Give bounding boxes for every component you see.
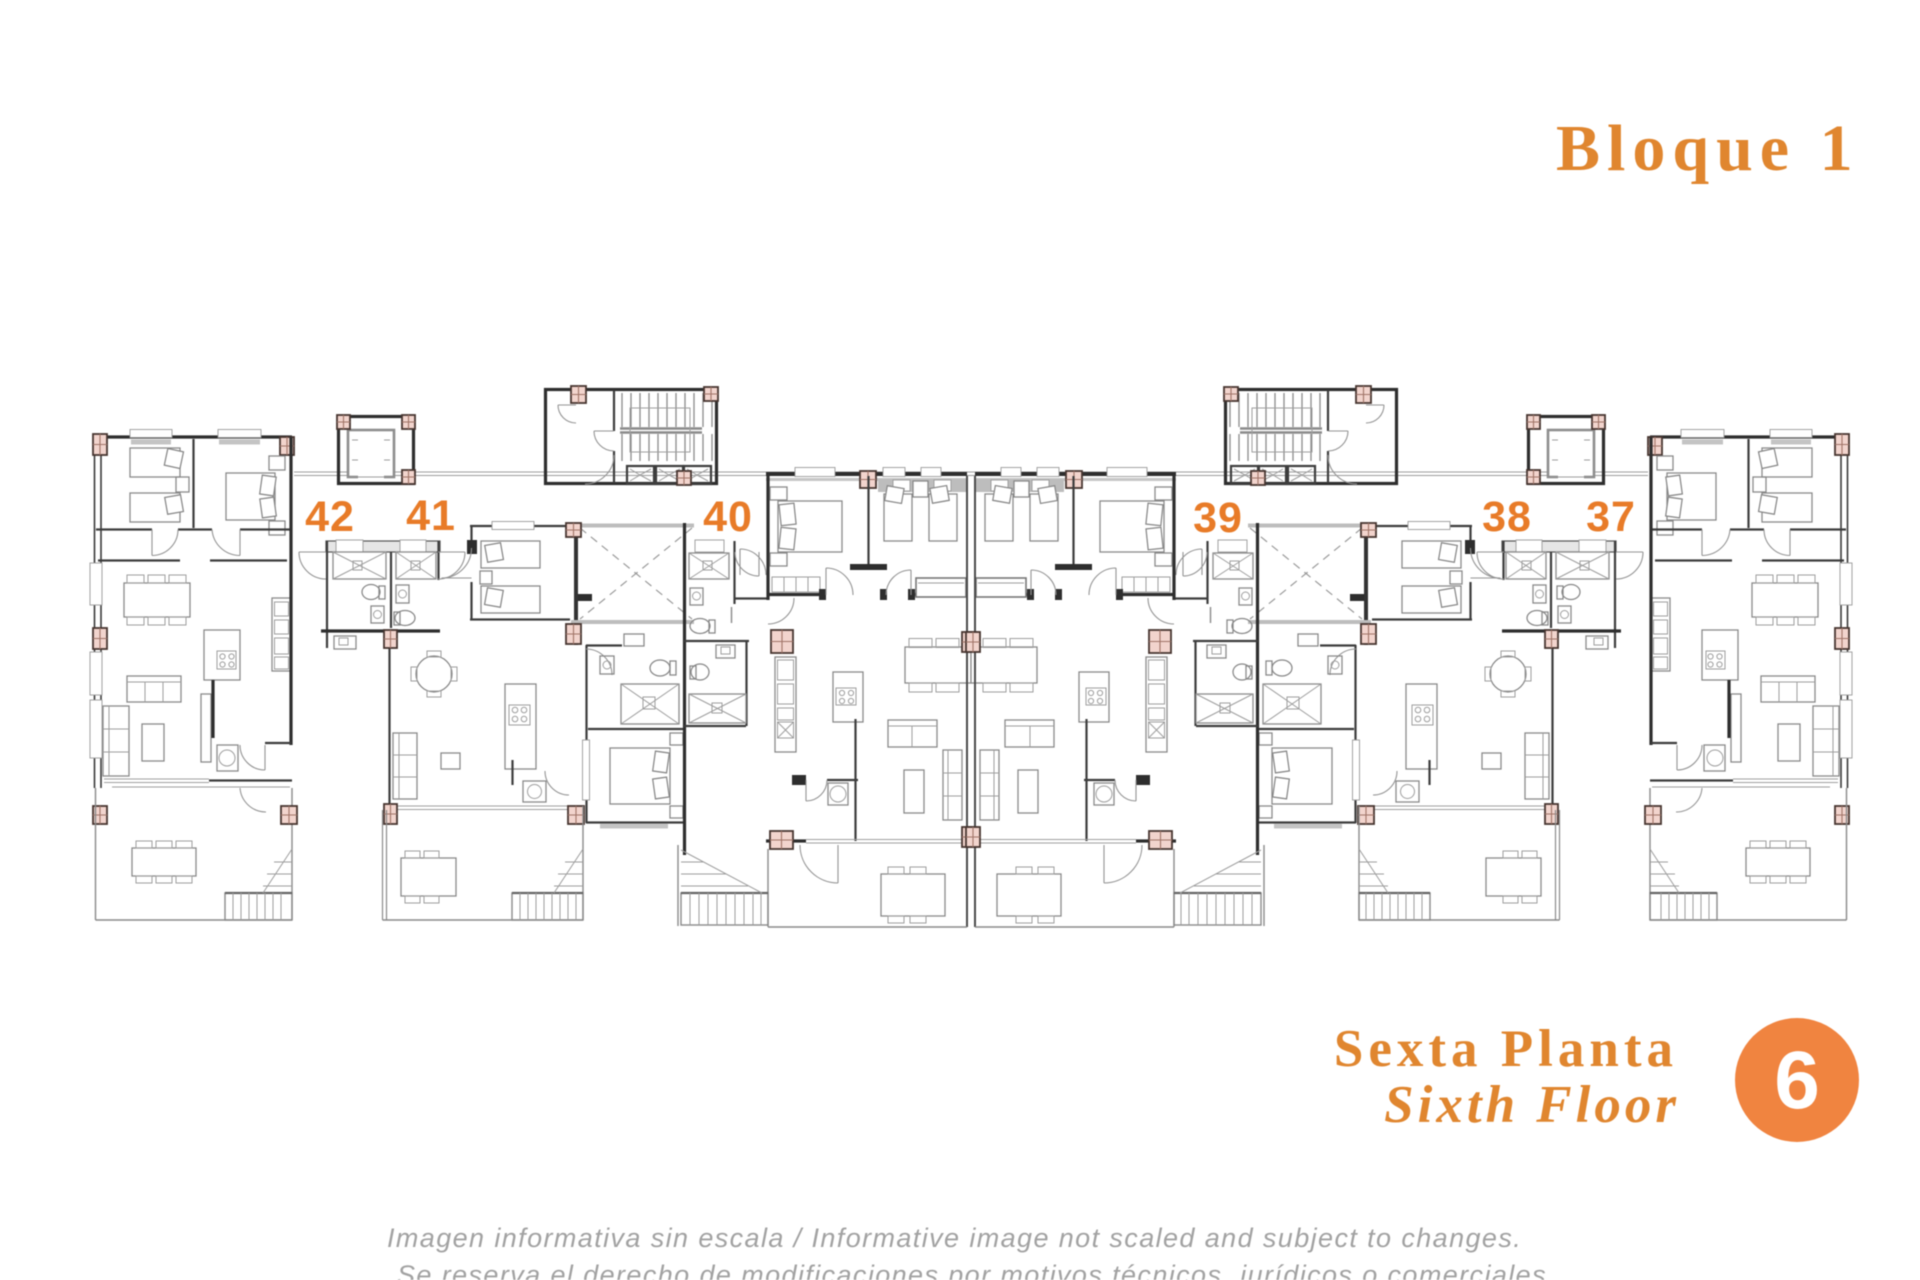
svg-text:38: 38 <box>1482 493 1532 541</box>
svg-text:42: 42 <box>305 493 355 541</box>
svg-text:Imagen informativa sin escala: Imagen informativa sin escala / Informat… <box>387 1223 1522 1253</box>
svg-text:Sixth Floor: Sixth Floor <box>1384 1076 1680 1134</box>
svg-text:Sexta Planta: Sexta Planta <box>1334 1020 1678 1078</box>
svg-text:39: 39 <box>1193 494 1243 542</box>
svg-text:6: 6 <box>1774 1035 1820 1126</box>
svg-text:37: 37 <box>1586 493 1636 541</box>
svg-text:41: 41 <box>406 492 456 540</box>
svg-text:Se reserva el derecho de modif: Se reserva el derecho de modificaciones … <box>397 1260 1556 1280</box>
svg-text:Bloque 1: Bloque 1 <box>1556 112 1860 185</box>
svg-text:40: 40 <box>703 493 753 541</box>
